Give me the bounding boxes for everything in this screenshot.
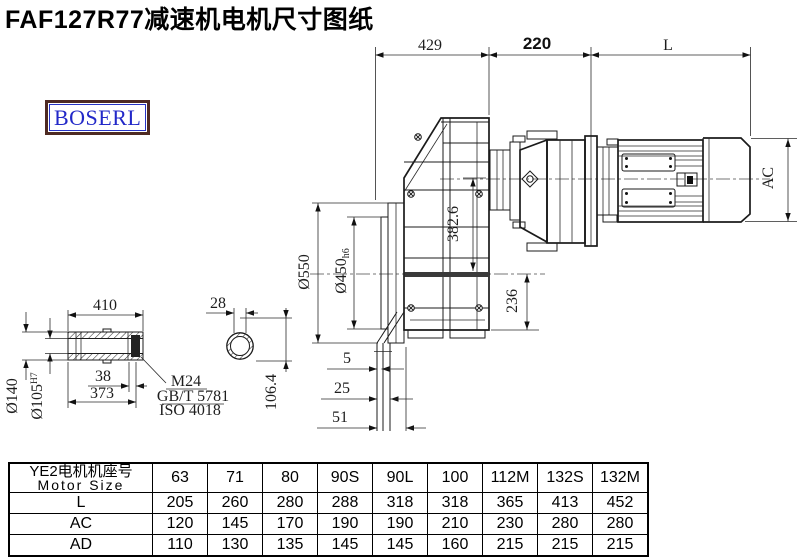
cell: 230: [483, 514, 538, 535]
dim-106: 106.4: [263, 374, 280, 410]
cell: 160: [428, 535, 483, 557]
col-header: 71: [208, 463, 263, 493]
dim-220: 220: [523, 34, 551, 53]
cell: 215: [593, 535, 649, 557]
output-flange: [374, 203, 406, 431]
ac-dimension: AC: [745, 139, 797, 222]
cell: 318: [428, 493, 483, 514]
cell: 190: [318, 514, 373, 535]
spec-table: YE2电机机座号 Motor Size 63 71 80 90S 90L 100…: [8, 462, 649, 557]
height-dimensions: 382.6 236: [445, 178, 539, 330]
dim-5: 5: [343, 350, 351, 367]
col-header: 132S: [538, 463, 593, 493]
row-label: AD: [9, 535, 153, 557]
cell: 145: [208, 514, 263, 535]
cell: 318: [373, 493, 428, 514]
dim-spigot: Ø450h6: [333, 248, 352, 294]
table-row: AC 120 145 170 190 190 210 230 280 280: [9, 514, 648, 535]
dim-236: 236: [504, 289, 521, 313]
table-header-row: YE2电机机座号 Motor Size 63 71 80 90S 90L 100…: [9, 463, 648, 493]
dim-28: 28: [210, 295, 226, 312]
dim-25: 25: [334, 380, 350, 397]
dim-L: L: [663, 37, 673, 54]
dim-429: 429: [418, 37, 442, 54]
cell: 288: [318, 493, 373, 514]
dim-382: 382.6: [445, 206, 462, 242]
col-header: 80: [263, 463, 318, 493]
r77-reducer: [490, 131, 597, 251]
cell: 215: [538, 535, 593, 557]
shaft-detail: Ø140 Ø105H7 410 38 373 M24 GB/T: [4, 297, 229, 420]
cell: 280: [538, 514, 593, 535]
dim-AC: AC: [760, 167, 777, 189]
cell: 145: [318, 535, 373, 557]
col-header: 112M: [483, 463, 538, 493]
cell: 145: [373, 535, 428, 557]
row-label: L: [9, 493, 153, 514]
col-header: 90L: [373, 463, 428, 493]
cell: 365: [483, 493, 538, 514]
dim-38: 38: [95, 368, 111, 385]
motor: [618, 138, 750, 222]
top-dimension-chain: 429 220 L: [376, 34, 751, 200]
cell: 120: [153, 514, 208, 535]
col-header: 100: [428, 463, 483, 493]
cell: 215: [483, 535, 538, 557]
table-row: AD 110 130 135 145 145 160 215 215 215: [9, 535, 648, 557]
page: { "title": "FAF127R77减速机电机尺寸图纸", "logo":…: [0, 0, 800, 557]
technical-drawing: 429 220 L: [0, 30, 800, 462]
col-header: 90S: [318, 463, 373, 493]
dim-od140: Ø140: [4, 378, 21, 414]
table-row: L 205 260 280 288 318 318 365 413 452: [9, 493, 648, 514]
cell: 280: [263, 493, 318, 514]
col-header: 63: [153, 463, 208, 493]
offset-dimensions: 5 25 51: [317, 350, 426, 431]
flange-diameter-dimensions: Ø550 Ø450h6: [296, 203, 389, 343]
col-header: 132M: [593, 463, 649, 493]
motor-size-header-cell: YE2电机机座号 Motor Size: [9, 463, 153, 493]
dim-flange-od: Ø550: [296, 254, 313, 290]
dim-51: 51: [332, 409, 348, 426]
motor-adapter: [597, 139, 618, 222]
dim-373: 373: [90, 385, 114, 402]
cell: 280: [593, 514, 649, 535]
cell: 170: [263, 514, 318, 535]
row-label: AC: [9, 514, 153, 535]
cell: 210: [428, 514, 483, 535]
motor-size-header-en: Motor Size: [10, 479, 152, 492]
cell: 190: [373, 514, 428, 535]
std-iso: ISO 4018: [159, 402, 221, 419]
dim-bore105: Ø105H7: [29, 372, 46, 419]
cell: 110: [153, 535, 208, 557]
dim-410: 410: [93, 297, 117, 314]
cell: 205: [153, 493, 208, 514]
cell: 452: [593, 493, 649, 514]
cell: 130: [208, 535, 263, 557]
cell: 135: [263, 535, 318, 557]
cell: 260: [208, 493, 263, 514]
cell: 413: [538, 493, 593, 514]
